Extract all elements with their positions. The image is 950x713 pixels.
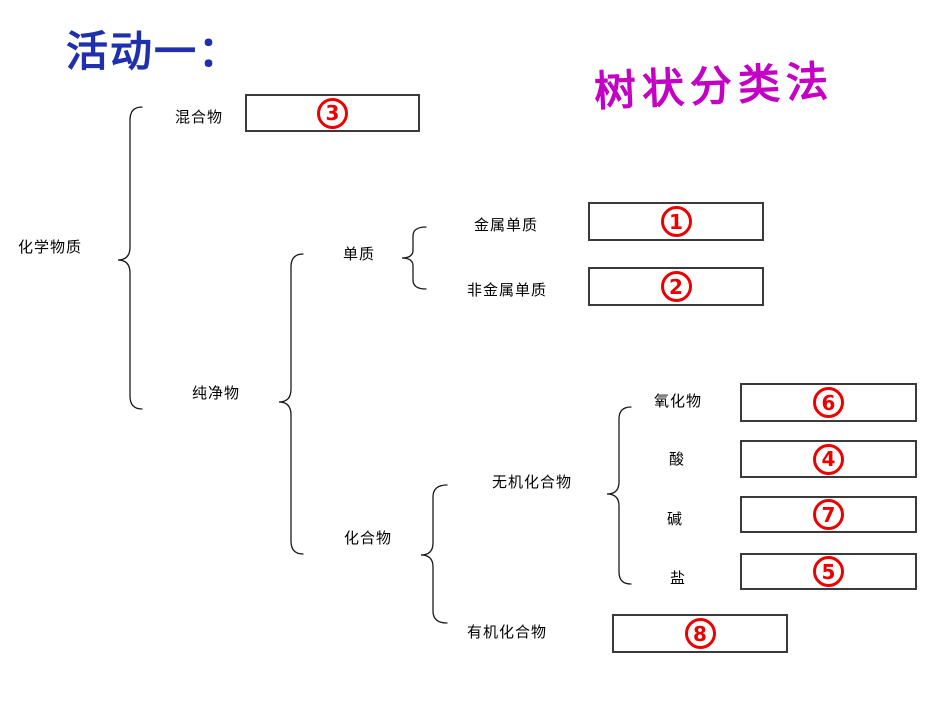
circled-number-2: 2 (661, 271, 692, 302)
answer-box-nonmetal-element: 2 (588, 267, 764, 306)
node-pure-substance: 纯净物 (192, 382, 240, 403)
answer-box-organic: 8 (612, 614, 788, 653)
brace-inorganic (605, 406, 633, 585)
node-inorganic-compound: 无机化合物 (492, 471, 572, 492)
slide-subtitle: 树状分类法 (593, 48, 835, 119)
node-metal-element: 金属单质 (474, 214, 538, 235)
node-organic-compound: 有机化合物 (467, 621, 547, 642)
brace-pure-substance (277, 253, 305, 555)
node-acid: 酸 (669, 448, 685, 469)
brace-compound (419, 484, 449, 624)
answer-box-base: 7 (740, 496, 917, 533)
node-chemical-substance: 化学物质 (18, 236, 82, 257)
brace-element (400, 226, 428, 290)
circled-number-7: 7 (813, 499, 844, 530)
answer-box-oxide: 6 (740, 383, 917, 422)
node-compound: 化合物 (344, 527, 392, 548)
node-base: 碱 (667, 508, 683, 529)
node-salt: 盐 (670, 567, 686, 588)
node-element: 单质 (343, 243, 375, 264)
node-nonmetal-element: 非金属单质 (467, 279, 547, 300)
brace-root (116, 106, 144, 410)
answer-box-salt: 5 (740, 553, 917, 590)
node-oxide: 氧化物 (654, 390, 702, 411)
answer-box-metal-element: 1 (588, 202, 764, 241)
circled-number-4: 4 (813, 444, 844, 475)
answer-box-acid: 4 (740, 440, 917, 478)
node-mixture: 混合物 (175, 106, 223, 127)
slide-canvas: 活动一： 树状分类法 化学物质 混合物 纯净物 单质 化合物 金属单质 非金属单… (0, 0, 950, 713)
circled-number-8: 8 (685, 618, 716, 649)
answer-box-mixture: 3 (245, 94, 420, 132)
circled-number-1: 1 (661, 206, 692, 237)
circled-number-3: 3 (317, 98, 348, 129)
circled-number-5: 5 (813, 556, 844, 587)
circled-number-6: 6 (813, 387, 844, 418)
slide-title: 活动一： (66, 18, 242, 79)
